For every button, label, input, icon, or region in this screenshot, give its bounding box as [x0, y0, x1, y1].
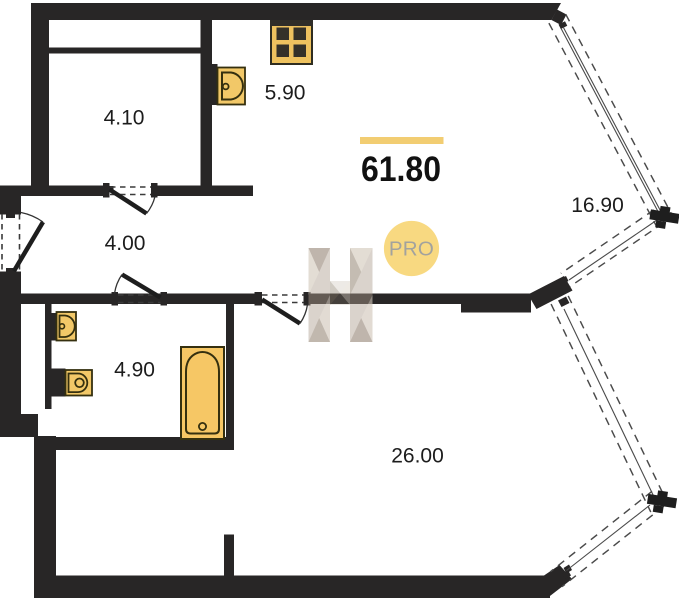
svg-text:16.90: 16.90: [571, 194, 624, 217]
svg-text:PRO: PRO: [389, 238, 434, 261]
svg-text:26.00: 26.00: [391, 445, 444, 468]
svg-text:4.10: 4.10: [104, 107, 145, 130]
svg-text:4.90: 4.90: [114, 359, 155, 382]
svg-text:5.90: 5.90: [265, 82, 306, 105]
svg-text:61.80: 61.80: [361, 149, 441, 189]
svg-text:4.00: 4.00: [105, 232, 146, 255]
